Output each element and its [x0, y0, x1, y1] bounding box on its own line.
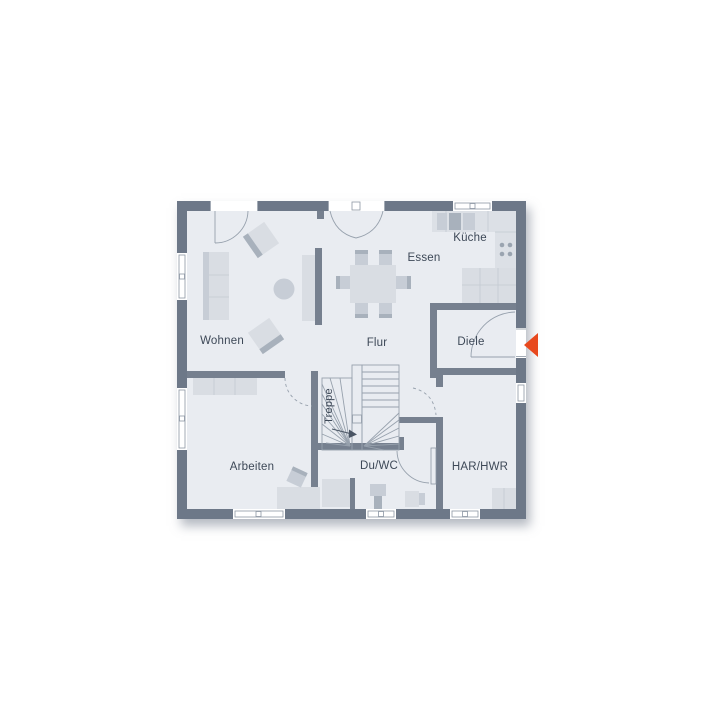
room-label-wohnen: Wohnen: [200, 335, 244, 347]
room-label-essen: Essen: [408, 252, 441, 264]
window-icon: [233, 509, 285, 519]
room-label-duwc: Du/WC: [360, 460, 398, 472]
utility-appliance: [492, 488, 516, 509]
coffee-table: [274, 279, 295, 300]
room-label-kueche: Küche: [453, 232, 487, 244]
floorplan-drawing: [0, 0, 720, 720]
room-label-arbeiten: Arbeiten: [230, 461, 274, 473]
window-icon: [516, 383, 526, 403]
desk: [277, 487, 320, 509]
floorplan-canvas: Wohnen Essen Küche Flur Diele Arbeiten T…: [0, 0, 720, 720]
kitchen-sink: [437, 213, 447, 230]
window-icon: [177, 388, 187, 450]
kitchen-appliance: [463, 213, 475, 230]
washbasin: [370, 484, 386, 496]
window-icon: [366, 509, 396, 519]
room-label-flur: Flur: [367, 337, 388, 349]
sideboard: [302, 255, 315, 321]
room-label-diele: Diele: [457, 336, 484, 348]
dining-table: [350, 265, 396, 303]
shelf: [193, 378, 257, 395]
window-icon: [453, 201, 492, 211]
kitchen-appliance: [449, 213, 461, 230]
shower: [322, 479, 350, 507]
window-icon: [450, 509, 480, 519]
entrance-arrow-icon: [524, 333, 538, 357]
toilet: [405, 491, 419, 507]
room-label-harhwr: HAR/HWR: [452, 461, 508, 473]
room-label-treppe: Treppe: [323, 388, 335, 424]
window-icon: [177, 253, 187, 300]
